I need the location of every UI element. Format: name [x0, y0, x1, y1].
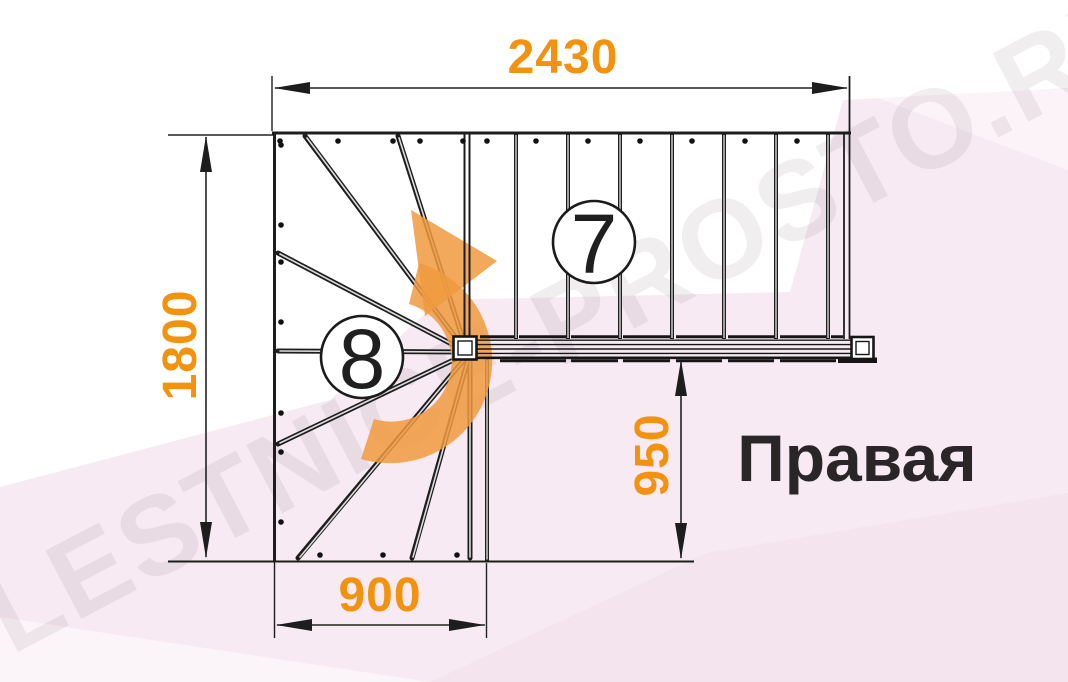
- dimension-arrowhead: [812, 82, 848, 94]
- dimension-label-1800: 1800: [154, 290, 207, 401]
- dimension-winder-width: 900: [276, 563, 487, 638]
- stair-plan-canvas: LESTNICE-PROSTO.RU: [0, 0, 1068, 682]
- dimension-label-2430: 2430: [508, 31, 619, 84]
- flight-steps: [454, 134, 878, 363]
- dimension-arrowhead: [449, 619, 485, 631]
- dimension-arrowhead: [200, 522, 212, 558]
- stringer-beam: [477, 337, 851, 361]
- dimension-top-width: 2430: [272, 31, 848, 131]
- step-count-straight-flight: 7: [553, 197, 635, 291]
- dimension-arrowhead: [675, 523, 687, 559]
- dimension-arrowhead: [200, 136, 212, 172]
- dimension-label-950: 950: [626, 413, 679, 496]
- dimension-flight-offset: 950: [626, 360, 687, 559]
- step-count-label-8: 8: [339, 312, 386, 406]
- dimension-arrowhead: [274, 82, 310, 94]
- dimension-arrowhead: [276, 619, 312, 631]
- stair-plan-drawing: 2430 1800 900 950 7: [0, 0, 1068, 682]
- stair-type-title: Правая: [737, 421, 976, 495]
- dimension-label-900: 900: [338, 569, 421, 622]
- dimension-arrowhead: [675, 360, 687, 396]
- dimension-left-depth: 1800: [154, 135, 273, 558]
- step-count-label-7: 7: [571, 197, 618, 291]
